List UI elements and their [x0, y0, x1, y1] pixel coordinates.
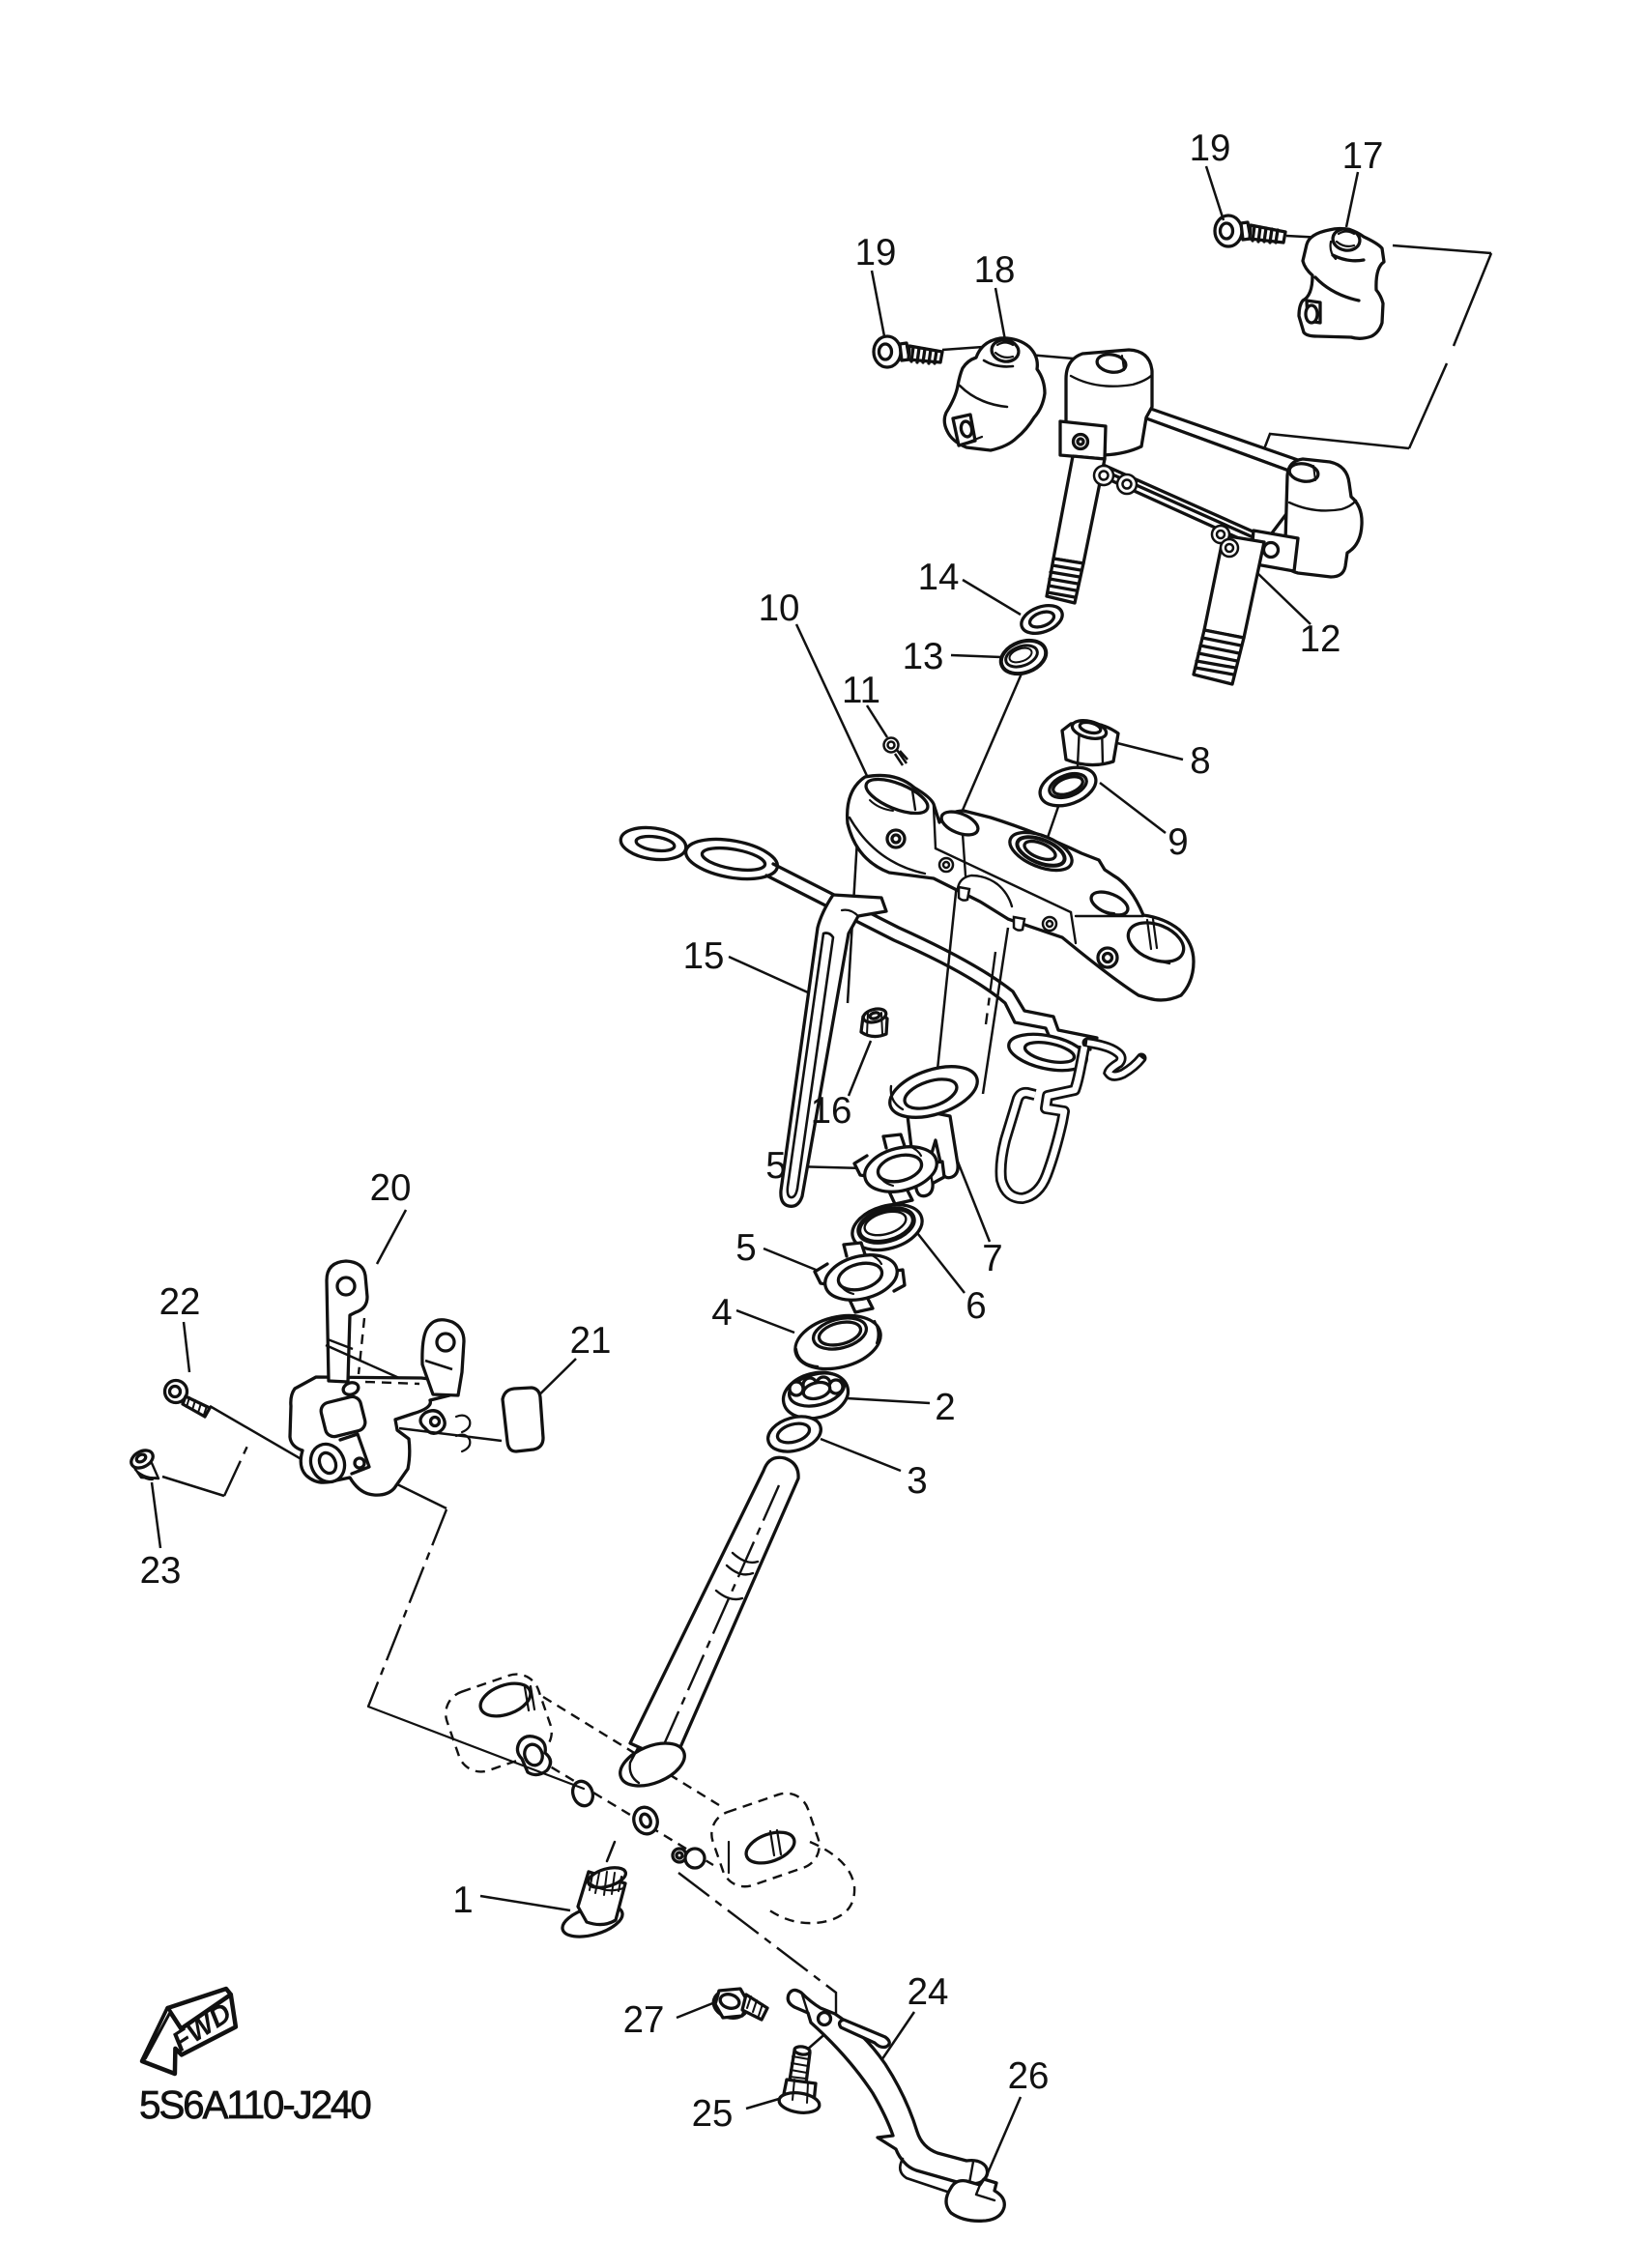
svg-text:5: 5	[765, 1145, 786, 1187]
svg-text:13: 13	[903, 636, 944, 677]
svg-text:16: 16	[811, 1090, 852, 1132]
svg-text:19: 19	[855, 232, 897, 273]
svg-text:7: 7	[982, 1238, 1002, 1279]
svg-text:6: 6	[966, 1285, 986, 1327]
svg-text:22: 22	[159, 1281, 201, 1323]
svg-text:17: 17	[1342, 135, 1384, 177]
svg-text:24: 24	[908, 1971, 949, 2013]
svg-text:2: 2	[935, 1387, 955, 1428]
svg-text:8: 8	[1190, 740, 1210, 782]
svg-text:21: 21	[570, 1320, 612, 1362]
svg-text:4: 4	[711, 1292, 732, 1334]
svg-text:15: 15	[683, 935, 725, 977]
svg-text:5S6A110-J240: 5S6A110-J240	[139, 2082, 370, 2127]
svg-text:19: 19	[1190, 128, 1231, 169]
svg-text:18: 18	[974, 249, 1016, 291]
svg-text:27: 27	[623, 1999, 665, 2041]
svg-text:23: 23	[140, 1550, 182, 1592]
svg-text:25: 25	[692, 2093, 734, 2135]
svg-text:20: 20	[370, 1167, 412, 1209]
svg-text:14: 14	[918, 557, 960, 598]
svg-text:3: 3	[907, 1460, 927, 1502]
svg-text:11: 11	[842, 670, 880, 711]
svg-text:12: 12	[1300, 618, 1341, 660]
svg-text:1: 1	[452, 1880, 473, 1921]
svg-text:9: 9	[1167, 821, 1188, 863]
svg-text:5: 5	[735, 1227, 756, 1269]
svg-text:26: 26	[1008, 2055, 1050, 2097]
svg-text:10: 10	[759, 588, 800, 629]
